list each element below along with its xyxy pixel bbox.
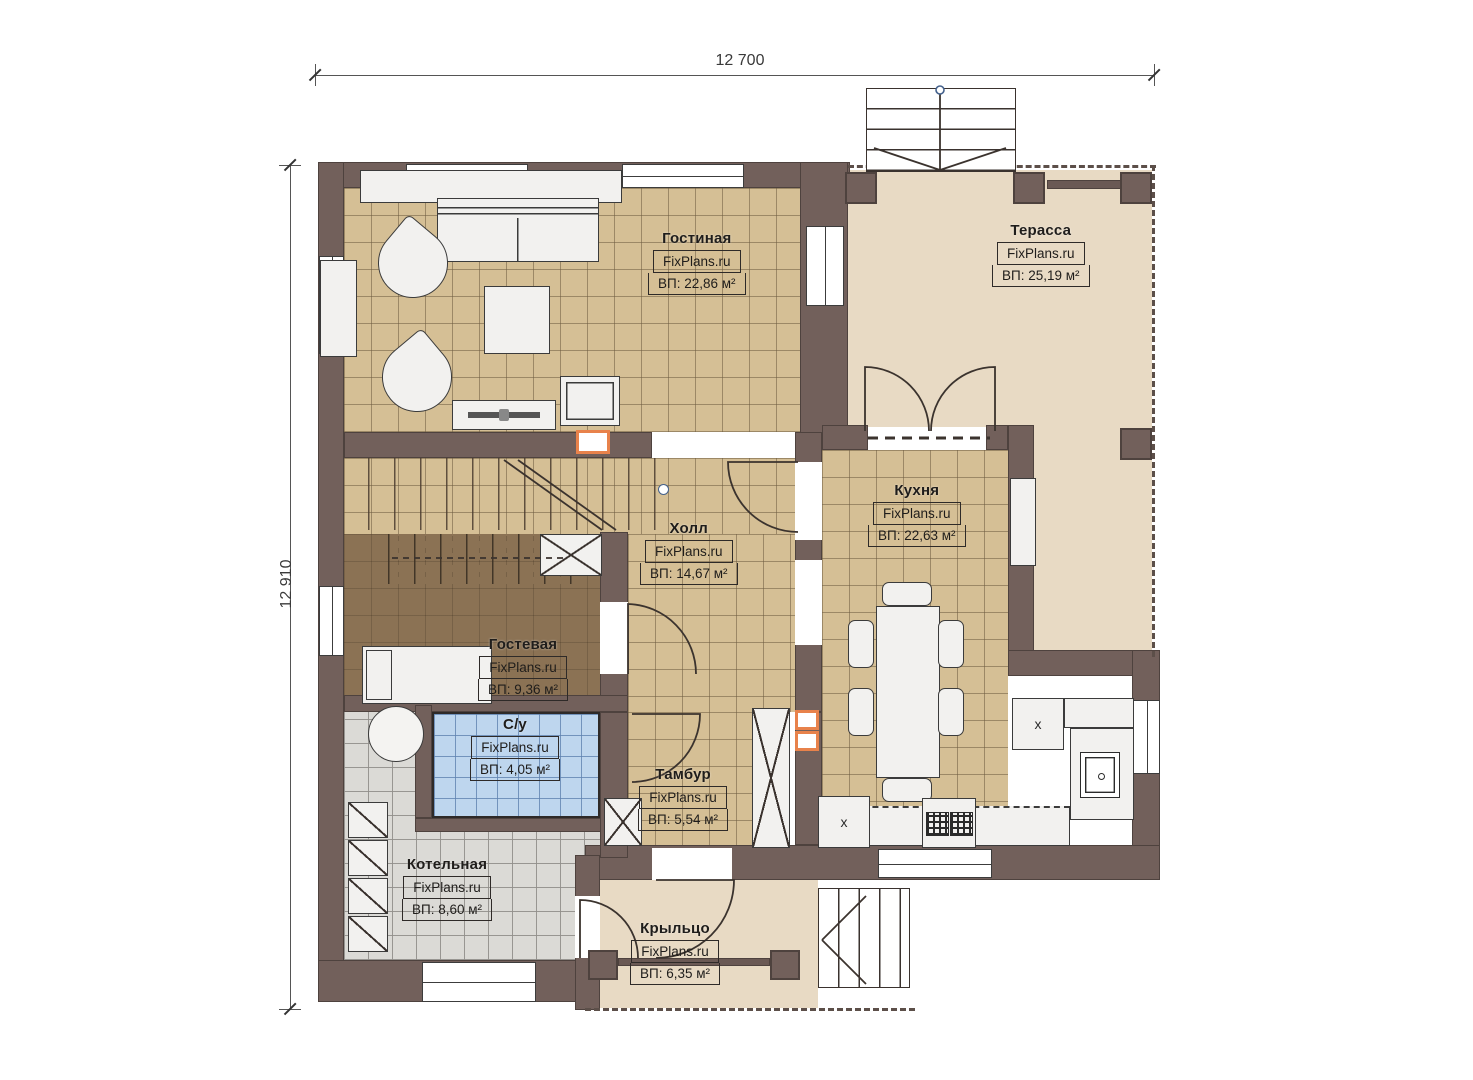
room-name-living: Гостиная	[662, 230, 731, 247]
opening-hall-kitchen-wide	[795, 560, 822, 645]
main-staircase-upper-flight	[368, 458, 664, 530]
wall-kitchen-north-b	[986, 425, 1008, 450]
dimension-line-top	[315, 75, 1155, 76]
opening-living-hall	[652, 432, 795, 458]
terrace-dashed-right	[1152, 165, 1155, 657]
room-label-porch: Крыльцо FixPlans.ru ВП: 6,35 м²	[630, 920, 720, 985]
room-label-boiler: Котельная FixPlans.ru ВП: 8,60 м²	[402, 856, 492, 921]
vent-marker-3	[795, 731, 819, 751]
brand-label: FixPlans.ru	[471, 736, 559, 759]
boiler-tank	[368, 706, 424, 762]
porch-side-stairs	[818, 888, 910, 988]
room-label-terrace: Терасса FixPlans.ru ВП: 25,19 м²	[992, 222, 1090, 287]
stair-direction-node	[658, 484, 669, 495]
stove-burner-right	[950, 812, 973, 836]
window-living-terrace	[806, 226, 844, 306]
dimension-label-top: 12 700	[695, 52, 785, 70]
room-name-porch: Крыльцо	[640, 920, 710, 937]
room-name-guest: Гостевая	[489, 636, 557, 653]
room-name-kitchen: Кухня	[894, 482, 939, 499]
wall-bathroom-south	[415, 818, 628, 832]
area-label: ВП: 6,35 м²	[630, 963, 720, 985]
area-label: ВП: 22,63 м²	[868, 525, 966, 547]
tv	[468, 412, 540, 418]
chair-right-2	[938, 688, 964, 736]
room-name-vestibule: Тамбур	[655, 766, 711, 783]
boiler-equipment-4	[348, 916, 388, 952]
room-name-boiler: Котельная	[407, 856, 487, 873]
floor-plan-canvas: 12 700 12 910	[0, 0, 1473, 1080]
boiler-equipment-1	[348, 802, 388, 838]
terrace-railing	[1047, 180, 1121, 189]
terrace-entry-stairs	[866, 88, 1016, 172]
brand-label: FixPlans.ru	[479, 656, 567, 679]
area-label: ВП: 9,36 м²	[478, 679, 568, 701]
kitchen-sink	[1080, 752, 1120, 798]
room-label-living: Гостиная FixPlans.ru ВП: 22,86 м²	[648, 230, 746, 295]
window-north-2	[622, 164, 744, 188]
kitchen-cabinet-x-2: x	[1012, 698, 1064, 750]
dimension-label-left: 12 910	[278, 539, 296, 629]
window-west-guest	[319, 586, 344, 656]
chair-top	[882, 582, 932, 606]
boiler-equipment-3	[348, 878, 388, 914]
area-label: ВП: 14,67 м²	[640, 563, 738, 585]
chair-right-1	[938, 620, 964, 668]
door-gap-entrance	[652, 848, 732, 880]
room-label-bathroom: С/у FixPlans.ru ВП: 4,05 м²	[470, 716, 560, 781]
terrace-column-1	[845, 172, 877, 204]
window-bay-left	[320, 260, 357, 357]
window-south-boiler	[422, 962, 536, 1002]
brand-label: FixPlans.ru	[639, 786, 727, 809]
wardrobe	[752, 708, 790, 848]
area-label: ВП: 8,60 м²	[402, 899, 492, 921]
room-label-vestibule: Тамбур FixPlans.ru ВП: 5,54 м²	[638, 766, 728, 831]
room-name-bathroom: С/у	[503, 716, 527, 733]
boiler-equipment-2	[348, 840, 388, 876]
terrace-column-2	[1013, 172, 1045, 204]
chair-left-1	[848, 620, 874, 668]
window-east-lower	[1133, 700, 1160, 774]
brand-label: FixPlans.ru	[997, 242, 1085, 265]
brand-label: FixPlans.ru	[645, 540, 733, 563]
area-label: ВП: 4,05 м²	[470, 759, 560, 781]
terrace-floor-upper	[848, 170, 1152, 432]
stove-burner-left	[926, 812, 949, 836]
area-label: ВП: 22,86 м²	[648, 273, 746, 295]
sofa	[437, 198, 599, 262]
brand-label: FixPlans.ru	[653, 250, 741, 273]
room-label-guest: Гостевая FixPlans.ru ВП: 9,36 м²	[478, 636, 568, 701]
area-label: ВП: 5,54 м²	[638, 809, 728, 831]
fireplace-cabinet	[560, 376, 620, 426]
door-gap-guest	[600, 602, 628, 674]
terrace-column-4	[1120, 428, 1152, 460]
area-label: ВП: 25,19 м²	[992, 265, 1090, 287]
door-gap-french	[868, 427, 986, 448]
brand-label: FixPlans.ru	[631, 940, 719, 963]
vent-marker-2	[795, 710, 819, 730]
room-name-terrace: Терасса	[1010, 222, 1071, 239]
porch-dashed-bottom	[585, 1008, 915, 1011]
room-label-kitchen: Кухня FixPlans.ru ВП: 22,63 м²	[868, 482, 966, 547]
bed-pillow	[366, 650, 392, 700]
room-name-hall: Холл	[670, 520, 708, 537]
porch-post-right	[770, 950, 800, 980]
brand-label: FixPlans.ru	[873, 502, 961, 525]
kitchen-tall-unit	[1010, 478, 1036, 566]
door-gap-hall-kitchen	[795, 462, 822, 540]
vent-marker-1	[576, 430, 610, 454]
dining-table	[876, 606, 940, 778]
window-south-kitchen	[878, 849, 992, 878]
chair-left-2	[848, 688, 874, 736]
coffee-table	[484, 286, 550, 354]
staircase-landing-shaft	[540, 534, 602, 576]
terrace-column-3	[1120, 172, 1152, 204]
brand-label: FixPlans.ru	[403, 876, 491, 899]
room-label-hall: Холл FixPlans.ru ВП: 14,67 м²	[640, 520, 738, 585]
wall-kitchen-north-a	[822, 425, 868, 450]
kitchen-cabinet-x-1: x	[818, 796, 870, 848]
terrace-floor-right	[1034, 432, 1152, 655]
kitchen-counter-corner	[1064, 698, 1134, 728]
porch-post-left	[588, 950, 618, 980]
door-gap-porch-west	[575, 896, 600, 958]
vestibule-cabinet	[604, 798, 642, 846]
